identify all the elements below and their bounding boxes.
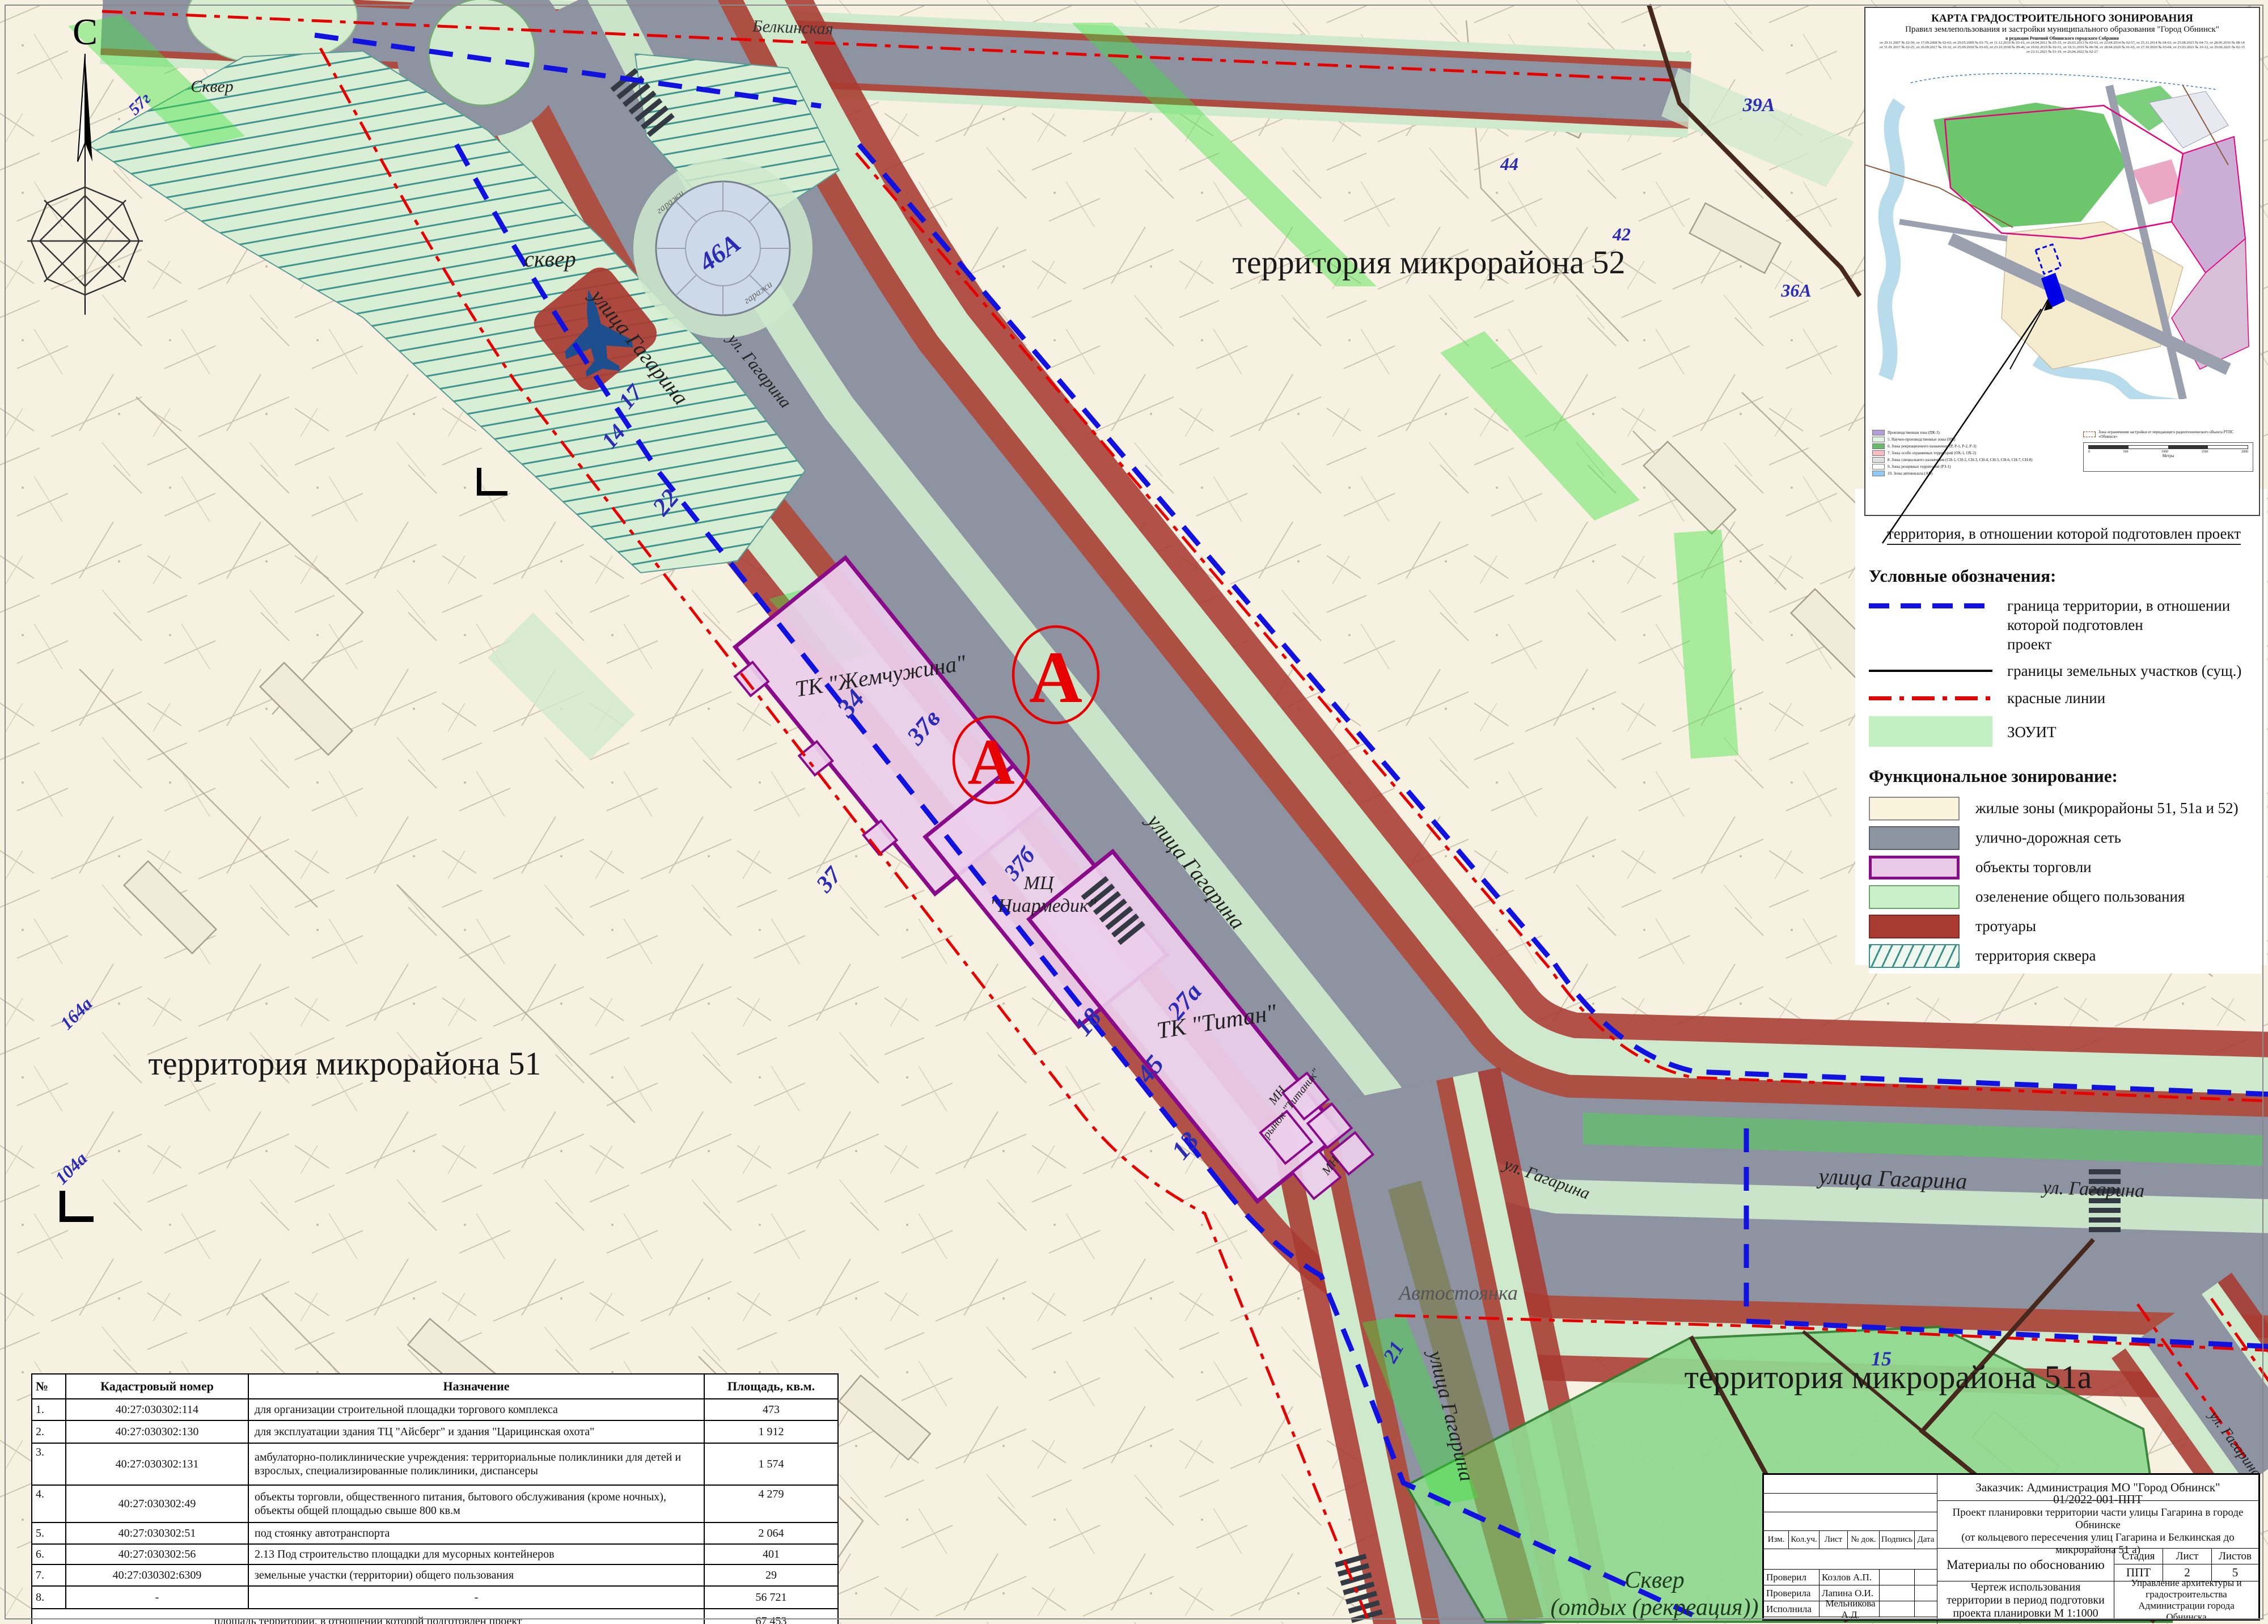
tb-drawing-title: Чертеж использования территории в период…: [1937, 1581, 2114, 1619]
title-block: Изм. Кол.уч. Лист № док. Подпись Дата Пр…: [1762, 1473, 2260, 1621]
table-footer-row: площадь территории, в отношении которой …: [32, 1609, 838, 1624]
tb-col-koluch: Кол.уч.: [1789, 1531, 1820, 1549]
legend-zouit-label: ЗОУИТ: [2007, 716, 2057, 742]
cell: 1 574: [704, 1443, 838, 1485]
inset-map-canvas: [1865, 54, 2259, 399]
tb-role-label-1: Проверил: [1764, 1570, 1820, 1585]
parking-label: Автостоянка: [1398, 1282, 1518, 1304]
zoning-title: Функциональное зонирование:: [1869, 766, 2261, 786]
marker-a-2: А: [967, 726, 1014, 798]
cell: для эксплуатации здания ТЦ "Айсберг" и з…: [248, 1420, 704, 1443]
legend-zouit-swatch: [1869, 716, 1992, 747]
inset-edition: в редакции Решений Обнинского городского…: [1865, 36, 2259, 41]
inset-amendments-1: от 29.11.2007 № 02-50, от 17.09.2008 № 0…: [1865, 41, 2259, 45]
parcel-42: 42: [1612, 224, 1631, 244]
zoning-residential-label: жилые зоны (микрорайоны 51, 51а и 52): [1975, 799, 2239, 818]
zoning-retail-swatch: [1869, 856, 1960, 879]
table-footer-value: 67 453: [704, 1609, 838, 1624]
cell: под стоянку автотранспорта: [248, 1522, 704, 1544]
zoning-roads-swatch: [1869, 826, 1960, 850]
territory-label-51: территория микрорайона 51: [149, 1045, 541, 1082]
legend-landline-label: границы земельных участков (сущ.): [2007, 662, 2241, 681]
inset-chip-1: [1872, 430, 1885, 435]
cell: -: [248, 1586, 704, 1609]
parcel-table: № Кадастровый номер Назначение Площадь, …: [31, 1373, 839, 1624]
tb-role-label-3: Исполнила: [1764, 1601, 1820, 1617]
parcel-15: 15: [1871, 1347, 1892, 1370]
inset-chip-rtps: [2083, 432, 2096, 437]
inset-chip-6: [1872, 464, 1885, 470]
table-row: 6.40:27:030302:56 2.13 Под строительство…: [32, 1544, 838, 1564]
street-belkinskaya: Белкинская: [751, 16, 833, 38]
inset-chip-7: [1872, 471, 1885, 476]
inset-chip-4: [1872, 450, 1885, 456]
legend-boundary-label: граница территории, в отношении которой …: [2007, 597, 2230, 633]
tb-role-name-3: Мельникова А.Д.: [1820, 1601, 1880, 1617]
tb-role-label-2: Проверила: [1764, 1585, 1820, 1601]
parcel-44: 44: [1500, 154, 1518, 174]
cell: объекты торговли, общественного питания,…: [248, 1485, 704, 1522]
legend-redline-label: красные линии: [2007, 689, 2105, 708]
cell: амбулаторно-поликлинические учреждения: …: [248, 1443, 704, 1485]
cell: 4.: [32, 1485, 66, 1522]
col-header-kadastr: Кадастровый номер: [66, 1374, 248, 1399]
table-row: 2.40:27:030302:130 для эксплуатации здан…: [32, 1420, 838, 1443]
inset-caption: территория, в отношении которой подготов…: [1869, 525, 2259, 543]
skver-small-label: сквер: [524, 246, 576, 272]
scale-tick: 1500: [2202, 450, 2208, 454]
inset-chip-5: [1872, 457, 1885, 463]
legend-title: Условные обозначения:: [1869, 566, 2261, 586]
street-gagarina-3: улица Гагарина: [1816, 1163, 1967, 1194]
legend-boundary-label2: проект: [2007, 636, 2051, 653]
zoning-residential-swatch: [1869, 797, 1960, 821]
tb-code: 01/2022-001-ППТ: [2053, 1492, 2142, 1507]
drawing-sheet: территория микрорайона 52 территория мик…: [0, 0, 2268, 1624]
table-row: 3.40:27:030302:131 амбулаторно-поликлини…: [32, 1443, 838, 1485]
table-row: 7.40:27:030302:6309 земельные участки (т…: [32, 1564, 838, 1586]
skver-top-label: Сквер: [191, 77, 233, 96]
tb-sheets-label: Листов: [2212, 1549, 2258, 1564]
tb-stage-label: Стадия: [2114, 1549, 2163, 1564]
cell: 473: [704, 1399, 838, 1420]
cell: 5.: [32, 1522, 66, 1544]
compass-rose-icon: [27, 183, 143, 299]
col-header-area: Площадь, кв.м.: [704, 1374, 838, 1399]
legend-redline-swatch: [1869, 696, 1992, 700]
table-row: 8.- -56 721: [32, 1586, 838, 1609]
tb-col-data: Дата: [1915, 1531, 1937, 1549]
tb-col-dok: № док.: [1848, 1531, 1880, 1549]
legend-boundary-swatch: [1869, 603, 1992, 608]
cell: 1 912: [704, 1420, 838, 1443]
inset-legend-item: 7. Зоны особо охраняемых территорий (ОХ-…: [1888, 451, 1976, 455]
inset-chip-3: [1872, 443, 1885, 449]
inset-zoning-map: КАРТА ГРАДОСТРОИТЕЛЬНОГО ЗОНИРОВАНИЯ Пра…: [1864, 7, 2260, 516]
inset-amendments-2: от 31.01.2017 № 02-25, от 26.09.2017 № 1…: [1865, 45, 2259, 50]
cell: 4 279: [704, 1485, 838, 1522]
zoning-skver-swatch: [1869, 944, 1960, 968]
cell: 40:27:030302:6309: [66, 1564, 248, 1586]
niarmedik-label-1: МЦ: [1023, 873, 1055, 894]
tb-materials: Материалы по обоснованию: [1937, 1549, 2114, 1581]
scale-tick: 500: [2123, 450, 2129, 454]
legend: Условные обозначения: граница территории…: [1869, 566, 2261, 974]
zoning-greenery-label: озеленение общего пользования: [1975, 887, 2185, 907]
zoning-sidewalks-swatch: [1869, 915, 1960, 938]
cell: земельные участки (территории) общего по…: [248, 1564, 704, 1586]
inset-legend: Производственная зона (ПК-3) 5. Научно-п…: [1865, 428, 2259, 513]
scale-tick: 2000: [2241, 450, 2248, 454]
inset-legend-item: 8. Зоны специального назначения (СН-1, С…: [1888, 458, 2033, 462]
cell: 40:27:030302:51: [66, 1522, 248, 1544]
scale-tick: 0: [2088, 450, 2090, 454]
cell: 29: [704, 1564, 838, 1586]
cell: 2 064: [704, 1522, 838, 1544]
cell: 40:27:030302:114: [66, 1399, 248, 1420]
marker-a-1: А: [1029, 637, 1082, 718]
cell: 8.: [32, 1586, 66, 1609]
parcel-39a: 39А: [1742, 95, 1775, 116]
tb-role-name-1: Козлов А.П.: [1820, 1570, 1880, 1585]
inset-rtps: Зона ограничения застройки от передающег…: [2098, 430, 2253, 439]
table-row: 5.40:27:030302:51 под стоянку автотрансп…: [32, 1522, 838, 1544]
inset-legend-item: 5. Научно-производственные зоны (НП): [1888, 437, 1956, 442]
inset-legend-item: 6. Зоны рекреационного назначения (Р, Р-…: [1888, 444, 1977, 449]
street-gagarina-short-3: ул. Гагарина: [2041, 1177, 2145, 1202]
inset-scale-bar: 0 500 1000 1500 2000 Метры: [2083, 442, 2253, 472]
cell: 40:27:030302:49: [66, 1485, 248, 1522]
inset-chip-2: [1872, 437, 1885, 442]
cell: 2.13 Под строительство площадки для мусо…: [248, 1544, 704, 1564]
table-row: 1.40:27:030302:114 для организации строи…: [32, 1399, 838, 1420]
cell: 7.: [32, 1564, 66, 1586]
table-row: 4.40:27:030302:49 объекты торговли, обще…: [32, 1485, 838, 1522]
cell: 401: [704, 1544, 838, 1564]
skver-rec-label-1: Сквер: [1624, 1567, 1685, 1593]
zoning-roads-label: улично-дорожная сеть: [1975, 828, 2121, 848]
inset-subtitle: Правил землепользования и застройки муни…: [1865, 25, 2259, 35]
cell: 3.: [32, 1443, 66, 1485]
tb-col-list: Лист: [1820, 1531, 1848, 1549]
territory-label-52: территория микрорайона 52: [1233, 244, 1626, 281]
inset-legend-item: Производственная зона (ПК-3): [1888, 430, 1940, 435]
cell: 6.: [32, 1544, 66, 1564]
legend-landline-swatch: [1869, 670, 1992, 672]
col-header-naznachenie: Назначение: [248, 1374, 704, 1399]
cell: 56 721: [704, 1586, 838, 1609]
zoning-greenery-swatch: [1869, 885, 1960, 909]
cell: 40:27:030302:131: [66, 1443, 248, 1485]
inset-amendments-3: от 23.11.2021 № 01-19, от 26.04.2022 № 0…: [1865, 50, 2259, 54]
inset-legend-item: 9. Зоны резервных территорий (РЗ-1): [1888, 464, 1950, 469]
skver-rec-label-2: (отдых (рекреация)): [1550, 1595, 1758, 1621]
cell: для организации строительной площадки то…: [248, 1399, 704, 1420]
tb-col-podpis: Подпись: [1880, 1531, 1915, 1549]
tb-project-1: Проект планировки территории части улицы…: [1941, 1507, 2255, 1532]
parcel-36a: 36А: [1780, 280, 1811, 301]
scale-units: Метры: [2088, 454, 2248, 458]
zoning-retail-label: объекты торговли: [1975, 858, 2092, 877]
cell: 40:27:030302:56: [66, 1544, 248, 1564]
cell: -: [66, 1586, 248, 1609]
niarmedik-label-2: "Ниармедик": [990, 895, 1097, 916]
inset-title: КАРТА ГРАДОСТРОИТЕЛЬНОГО ЗОНИРОВАНИЯ: [1865, 12, 2259, 25]
north-label: С: [73, 11, 98, 53]
table-footer-label: площадь территории, в отношении которой …: [32, 1609, 704, 1624]
cell: 2.: [32, 1420, 66, 1443]
cell: 40:27:030302:130: [66, 1420, 248, 1443]
col-header-num: №: [32, 1374, 66, 1399]
cell: 1.: [32, 1399, 66, 1420]
tb-sheet-label: Лист: [2163, 1549, 2212, 1564]
tb-col-izm: Изм.: [1764, 1531, 1789, 1549]
zoning-skver-label: территория сквера: [1975, 946, 2096, 966]
inset-legend-item: 10. Зоны автовокзала (АВ): [1888, 471, 1932, 476]
zoning-sidewalks-label: тротуары: [1975, 917, 2036, 936]
tb-organization: Управление архитектуры и градостроительс…: [2114, 1581, 2258, 1619]
